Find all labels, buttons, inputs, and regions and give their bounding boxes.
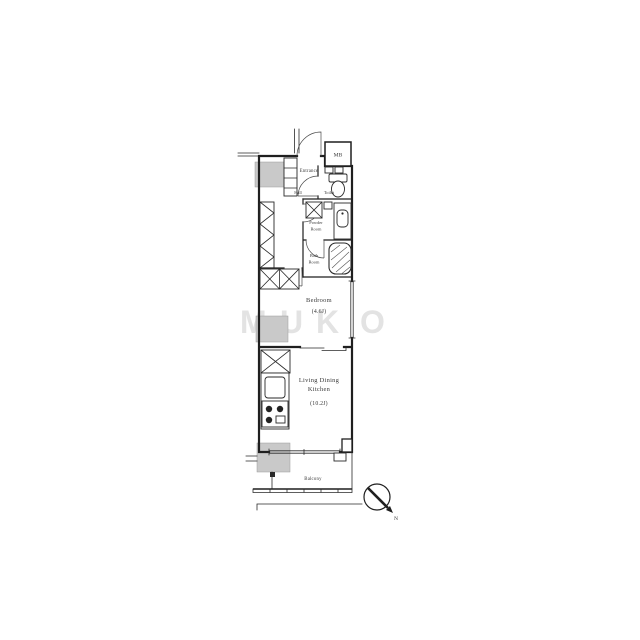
pillar (342, 439, 352, 452)
neighbor-structure-bottom (257, 443, 290, 472)
toilet-shelf (335, 167, 343, 173)
compass-north-label: N (394, 516, 398, 522)
toilet-label: Toilet (324, 190, 335, 195)
bedroom-label: Bedroom (306, 297, 332, 304)
bathtub (329, 243, 351, 274)
ldk-size: (10.2J) (310, 400, 328, 407)
stove-grill (276, 416, 285, 423)
floorplan-page: M U K O MB Entrance Hall (0, 0, 640, 640)
floorplan-drawing: M U K O MB Entrance Hall (0, 0, 640, 640)
neighbor-tick-lines (246, 456, 257, 461)
corridor-closet (260, 202, 274, 268)
bath-label-2: Room (309, 260, 320, 265)
corridor-wall-stub (295, 129, 300, 153)
bathroom: Bath Room (303, 240, 352, 277)
kitchen-sink (265, 377, 285, 398)
faucet-dot (341, 212, 343, 214)
balcony-equipment-box (334, 453, 346, 461)
watermark-letter: O (360, 304, 385, 340)
storage-box (324, 202, 332, 209)
ldk-label-1: Living Dining (299, 377, 340, 384)
powder-room-label-1: Powder (309, 220, 323, 225)
compass-needle (368, 488, 388, 508)
bedroom-window (349, 281, 355, 338)
toilet-shelf (325, 167, 333, 173)
meter-box: MB (325, 142, 351, 166)
meter-box-label: MB (334, 153, 343, 159)
bath-label-1: Bath (310, 253, 319, 258)
corridor-wall-left (238, 153, 259, 156)
stove-burner (277, 406, 283, 412)
stove-burner (266, 406, 272, 412)
compass: N (364, 484, 398, 522)
neighbor-structure-middle (256, 316, 288, 342)
closet-outline (260, 202, 274, 268)
entrance-label: Entrance (300, 169, 319, 174)
bedroom-size: (4.6J) (312, 308, 327, 315)
site-boundary-line (257, 504, 362, 510)
balcony-label: Balcony (304, 477, 322, 482)
ldk-sliding-door (300, 347, 346, 351)
boundary-post (270, 472, 275, 477)
entrance-door-arc (297, 132, 321, 156)
ldk-label-2: Kitchen (308, 386, 331, 393)
entrance-area: Entrance Hall (284, 132, 321, 196)
ldk: Living Dining Kitchen (10.2J) (261, 347, 352, 455)
powder-room-label-2: Room (311, 227, 322, 232)
stove-burner (266, 417, 272, 423)
